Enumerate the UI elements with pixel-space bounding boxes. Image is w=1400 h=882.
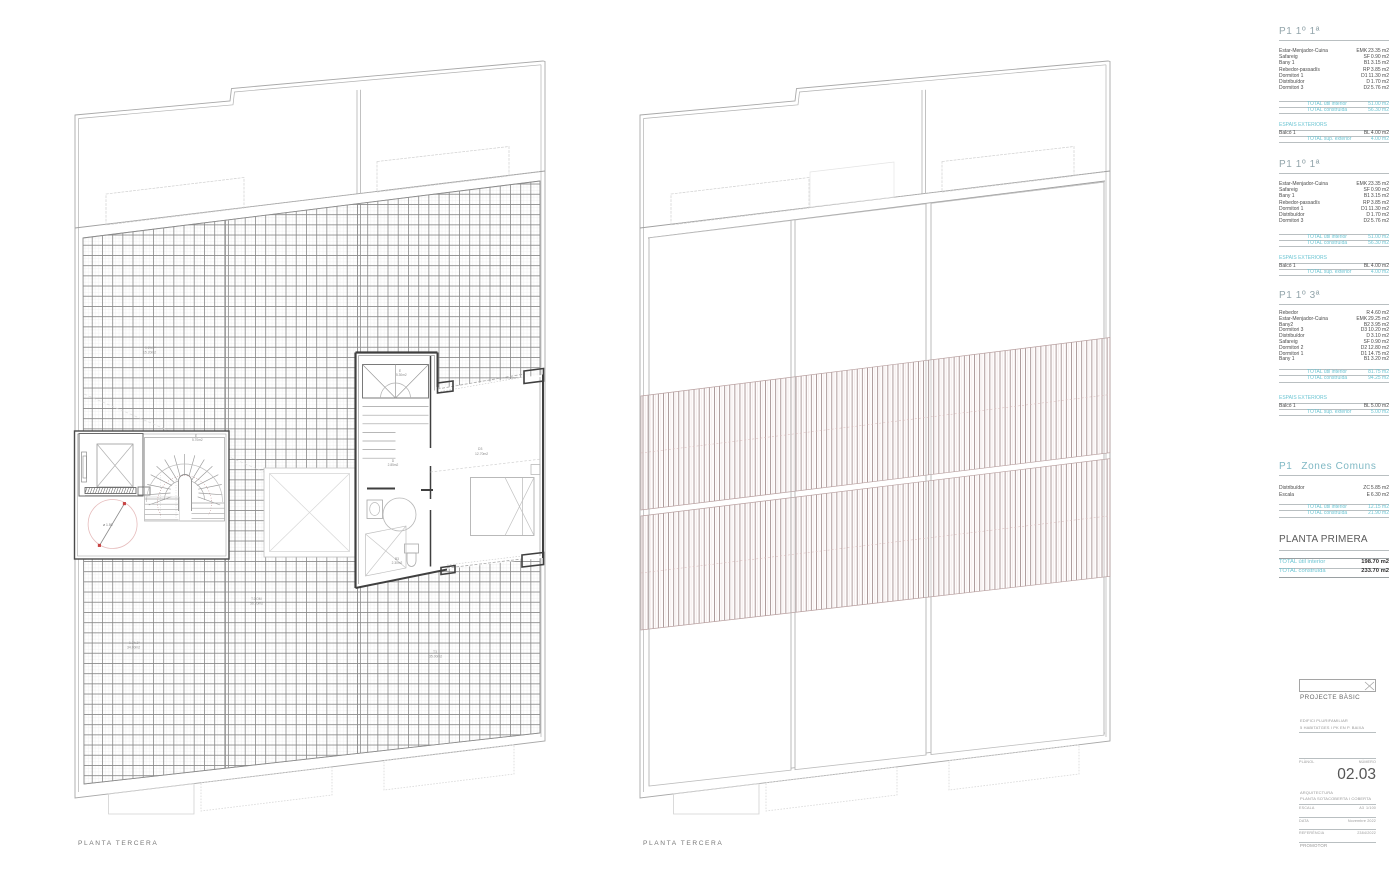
svg-text:T.DOM: T.DOM [251,597,262,601]
svg-text:PLANTA TERCERA: PLANTA TERCERA [643,840,723,847]
svg-text:1.2h.1ª: 1.2h.1ª [129,641,140,645]
svg-text:2.85m2: 2.85m2 [388,463,399,467]
svg-text:5.70m2: 5.70m2 [192,438,203,442]
svg-text:ø 1.50: ø 1.50 [103,523,113,527]
svg-text:T3: T3 [433,650,437,654]
svg-text:PLANTA TERCERA: PLANTA TERCERA [78,840,158,847]
svg-text:2.30m2: 2.30m2 [392,561,403,565]
svg-text:56.20m2: 56.20m2 [250,602,263,606]
svg-text:15.20m2: 15.20m2 [143,351,156,355]
svg-text:1.2h.2ª: 1.2h.2ª [145,346,156,350]
svg-text:35.00m2: 35.00m2 [429,655,442,659]
svg-text:34.00m2: 34.00m2 [127,646,140,650]
svg-text:5.30m2: 5.30m2 [396,373,407,377]
svg-text:12.70m2: 12.70m2 [475,452,488,456]
svg-text:D3: D3 [478,447,482,451]
